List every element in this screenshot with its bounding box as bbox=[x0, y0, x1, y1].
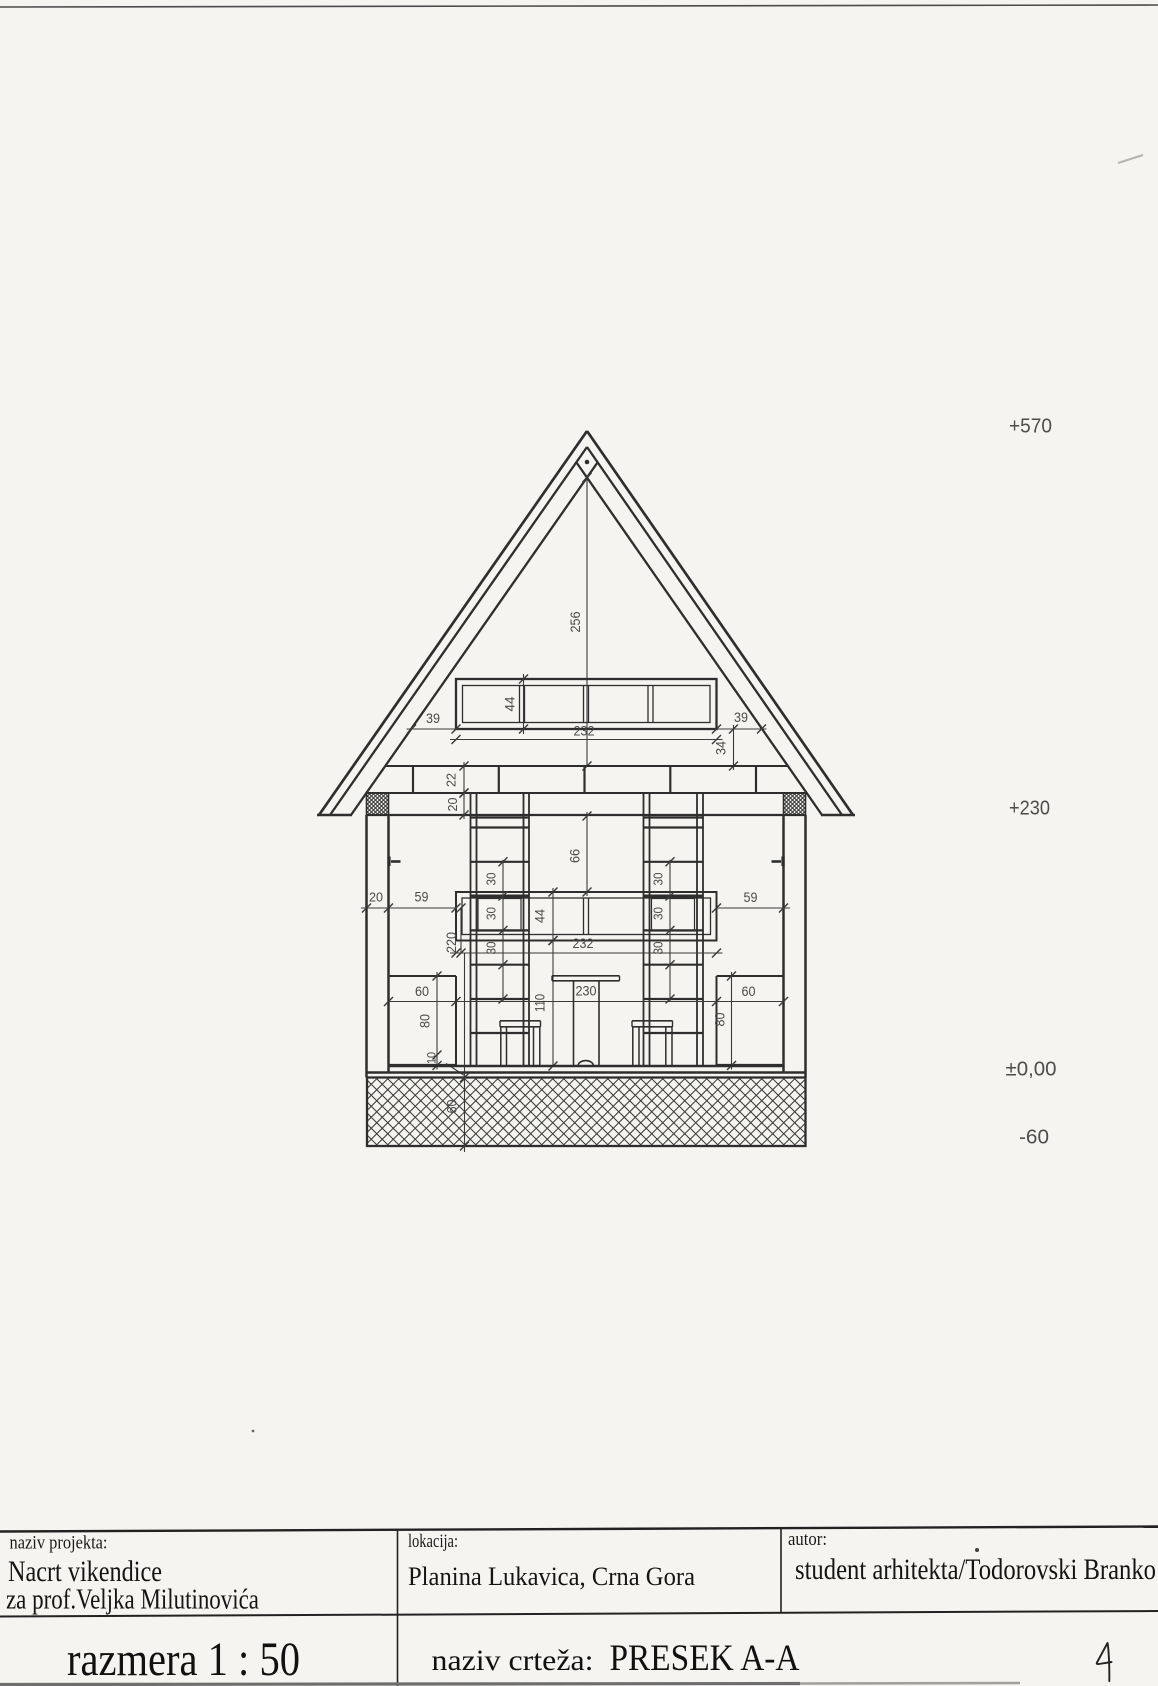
svg-text:10: 10 bbox=[425, 1052, 439, 1064]
svg-text:20: 20 bbox=[369, 890, 383, 905]
svg-text:±0,00: ±0,00 bbox=[1006, 1059, 1057, 1081]
svg-text:20: 20 bbox=[445, 798, 460, 812]
svg-text:PRESEK A-A: PRESEK A-A bbox=[610, 1637, 801, 1678]
svg-text:30: 30 bbox=[651, 907, 666, 920]
svg-text:+230: +230 bbox=[1009, 798, 1050, 820]
svg-text:-60: -60 bbox=[1019, 1127, 1049, 1149]
svg-text:230: 230 bbox=[576, 984, 597, 999]
svg-text:80: 80 bbox=[418, 1014, 433, 1028]
svg-text:razmera 1 : 50: razmera 1 : 50 bbox=[67, 1633, 300, 1686]
svg-text:30: 30 bbox=[484, 907, 499, 920]
svg-text:110: 110 bbox=[533, 994, 548, 1012]
svg-text:39: 39 bbox=[734, 710, 748, 725]
svg-text:59: 59 bbox=[415, 890, 429, 905]
svg-text:autor:: autor: bbox=[788, 1530, 827, 1550]
svg-text:za prof.Veljka Milutinovića: za prof.Veljka Milutinovića bbox=[6, 1585, 259, 1616]
svg-text:naziv crteža:: naziv crteža: bbox=[432, 1645, 594, 1677]
svg-text:60: 60 bbox=[742, 984, 756, 999]
svg-text:Nacrt vikendice: Nacrt vikendice bbox=[8, 1555, 162, 1588]
svg-text:30: 30 bbox=[484, 873, 499, 886]
svg-text:39: 39 bbox=[426, 711, 440, 726]
svg-text:44: 44 bbox=[503, 696, 518, 711]
svg-text:30: 30 bbox=[651, 873, 666, 886]
svg-text:lokacija:: lokacija: bbox=[408, 1532, 458, 1552]
svg-text:232: 232 bbox=[574, 724, 595, 739]
svg-text:Planina Lukavica, Crna Gora: Planina Lukavica, Crna Gora bbox=[408, 1562, 695, 1591]
svg-text:student arhitekta/Todorovski B: student arhitekta/Todorovski Branko bbox=[795, 1554, 1156, 1586]
svg-text:80: 80 bbox=[713, 1013, 728, 1027]
svg-text:+570: +570 bbox=[1009, 416, 1052, 438]
svg-text:22: 22 bbox=[444, 773, 459, 787]
svg-text:232: 232 bbox=[573, 936, 594, 951]
svg-text:60: 60 bbox=[415, 984, 429, 999]
svg-text:60: 60 bbox=[445, 1100, 460, 1114]
svg-text:naziv projekta:: naziv projekta: bbox=[10, 1533, 108, 1554]
svg-text:44: 44 bbox=[533, 909, 548, 923]
svg-text:220: 220 bbox=[444, 932, 459, 953]
svg-text:256: 256 bbox=[568, 612, 583, 633]
svg-text:66: 66 bbox=[568, 849, 583, 863]
svg-text:59: 59 bbox=[744, 890, 758, 905]
svg-text:34: 34 bbox=[714, 741, 729, 755]
